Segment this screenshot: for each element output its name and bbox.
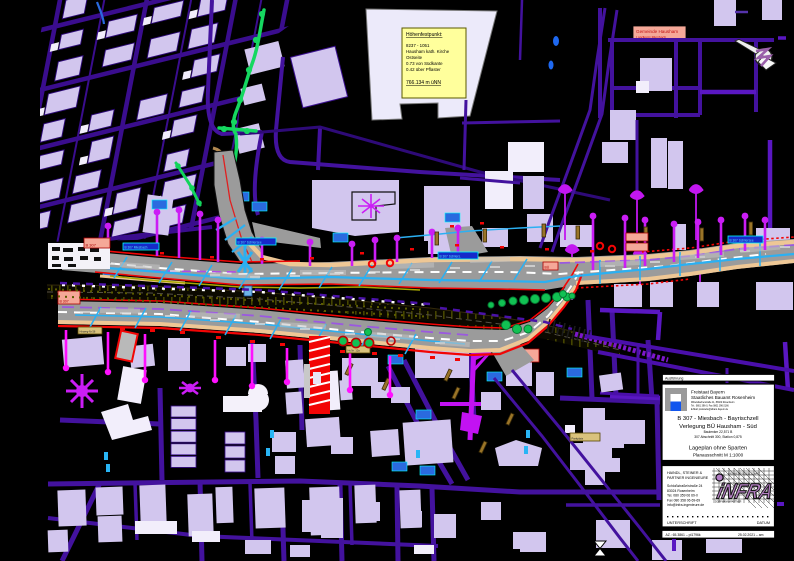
svg-text:Lageplan ohne Sparten: Lageplan ohne Sparten — [689, 445, 747, 451]
svg-text:Ausführung: Ausführung — [665, 377, 683, 381]
svg-text:HAINDL, STEINER &: HAINDL, STEINER & — [667, 471, 703, 475]
svg-text:info@infra-ingenieure.de: info@infra-ingenieure.de — [667, 503, 704, 507]
svg-text:INGENIEURGESELLSCHAFT: INGENIEURGESELLSCHAFT — [728, 473, 761, 476]
svg-text:B 307 Schliersee: B 307 Schliersee — [730, 239, 754, 243]
svg-text:Freistaat Bayern: Freistaat Bayern — [691, 390, 725, 395]
svg-text:8237 - 1051: 8237 - 1051 — [406, 43, 430, 48]
svg-text:0.73 von Südkante: 0.73 von Südkante — [406, 61, 443, 66]
svg-text:Hinweg-Nr 56: Hinweg-Nr 56 — [80, 330, 96, 334]
svg-text:Tel. 080 359 06 69-0: Tel. 080 359 06 69-0 — [667, 494, 698, 498]
svg-text:Gemeinde Hausham: Gemeinde Hausham — [636, 29, 678, 34]
svg-text:Schloßstraße/straße 24: Schloßstraße/straße 24 — [667, 484, 703, 488]
svg-text:Höhenfestpunkt:: Höhenfestpunkt: — [406, 32, 442, 38]
svg-text:B 307 Schliers.: B 307 Schliers. — [440, 255, 462, 259]
svg-text:25.02.2021 – am: 25.02.2021 – am — [738, 533, 764, 537]
svg-text:BÜ: BÜ — [545, 266, 550, 270]
svg-text:AZ.: 65.3861 – pl1796k: AZ.: 65.3861 – pl1796k — [666, 533, 701, 537]
svg-text:Planausschnitt M 1:1000: Planausschnitt M 1:1000 — [693, 453, 744, 458]
svg-text:B 307: B 307 — [60, 300, 69, 304]
svg-text:Parkplatz: Parkplatz — [572, 437, 584, 441]
svg-text:DATUM: DATUM — [757, 521, 770, 525]
svg-text:B 307 Miesbach: B 307 Miesbach — [125, 246, 148, 250]
svg-text:E-Mail: poststelle@stbaro.baye: E-Mail: poststelle@stbaro.bayern.de — [691, 408, 729, 411]
svg-text:DORFMANN+PARTNER: DORFMANN+PARTNER — [715, 500, 742, 503]
svg-text:83024 Rosenheim: 83024 Rosenheim — [667, 489, 695, 493]
svg-text:307 Abschnitt 300, Station 0,8: 307 Abschnitt 300, Station 0,875 — [694, 435, 742, 439]
svg-text:Tel.: 0801 396-0, Fax 0801 396: Tel.: 0801 396-0, Fax 0801 396-2166 — [691, 405, 729, 407]
svg-text:PARTNER INGENIEURE: PARTNER INGENIEURE — [667, 476, 709, 480]
svg-text:0.42 über Pflaster: 0.42 über Pflaster — [406, 67, 441, 72]
svg-text:Ostseite: Ostseite — [406, 55, 423, 60]
svg-text:Staatliches Bauamt Rosenheim: Staatliches Bauamt Rosenheim — [691, 395, 755, 400]
svg-text:B 307: B 307 — [86, 243, 97, 248]
svg-text:B 307 Schliersee: B 307 Schliersee — [238, 241, 262, 245]
svg-text:Fax 080 358 06 69-69: Fax 080 358 06 69-69 — [667, 498, 700, 502]
svg-text:UNTERSCHRIFT: UNTERSCHRIFT — [667, 521, 697, 525]
svg-text:B 307 - Miesbach - Bayrischzel: B 307 - Miesbach - Bayrischzell — [677, 416, 758, 422]
svg-text:Wittelsbacherstraße 11, 83022: Wittelsbacherstraße 11, 83022 Rosenheim — [691, 401, 734, 404]
svg-text:Verlegung BÜ Hausham - Süd: Verlegung BÜ Hausham - Süd — [679, 423, 757, 430]
svg-text:Baulenkm 22,571 B: Baulenkm 22,571 B — [704, 430, 734, 434]
svg-text:766.134 m üNN: 766.134 m üNN — [406, 80, 441, 86]
svg-text:Hs.Nr. 12a: Hs.Nr. 12a — [348, 349, 361, 353]
svg-text:Hausham kath. Kirche: Hausham kath. Kirche — [406, 49, 450, 54]
